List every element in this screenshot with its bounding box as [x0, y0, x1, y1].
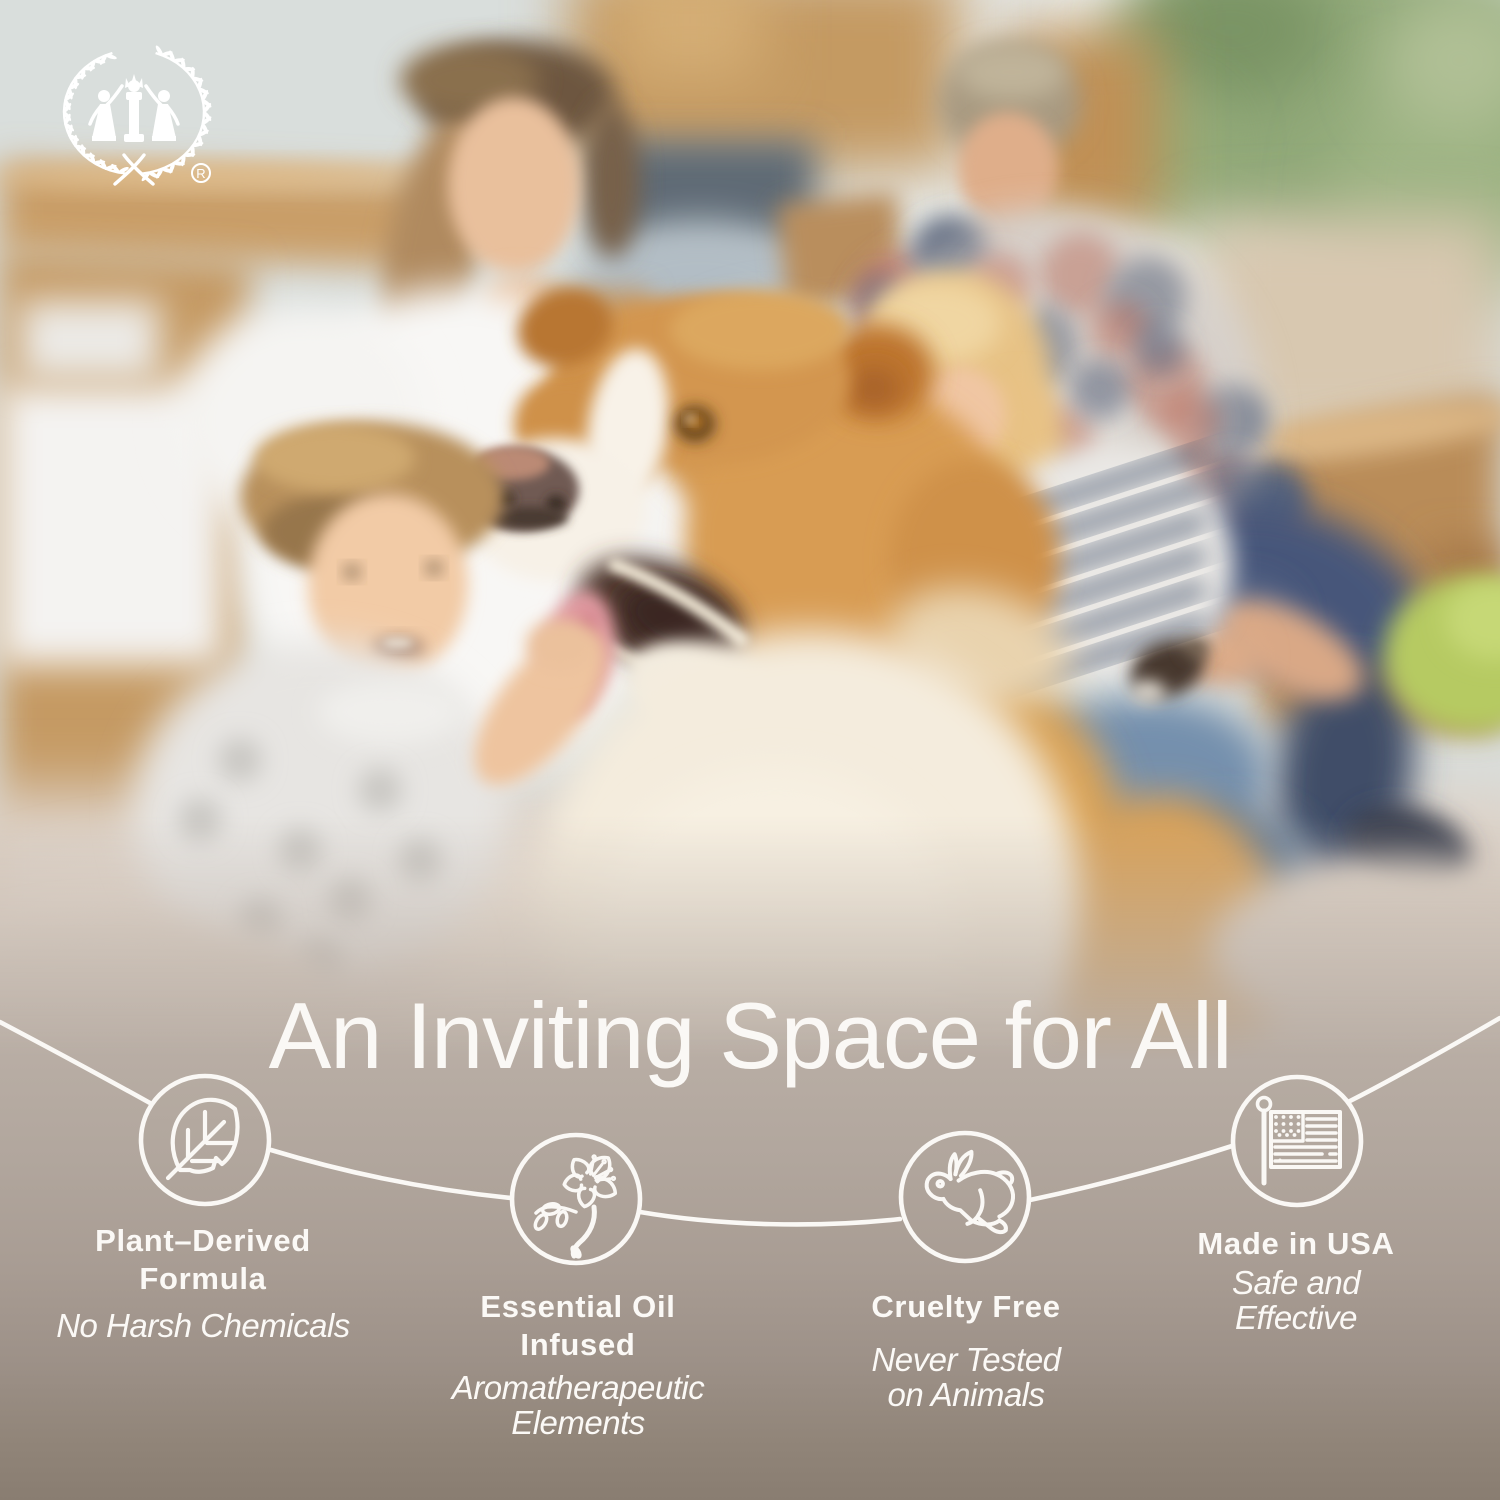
svg-text:R: R — [196, 166, 205, 181]
